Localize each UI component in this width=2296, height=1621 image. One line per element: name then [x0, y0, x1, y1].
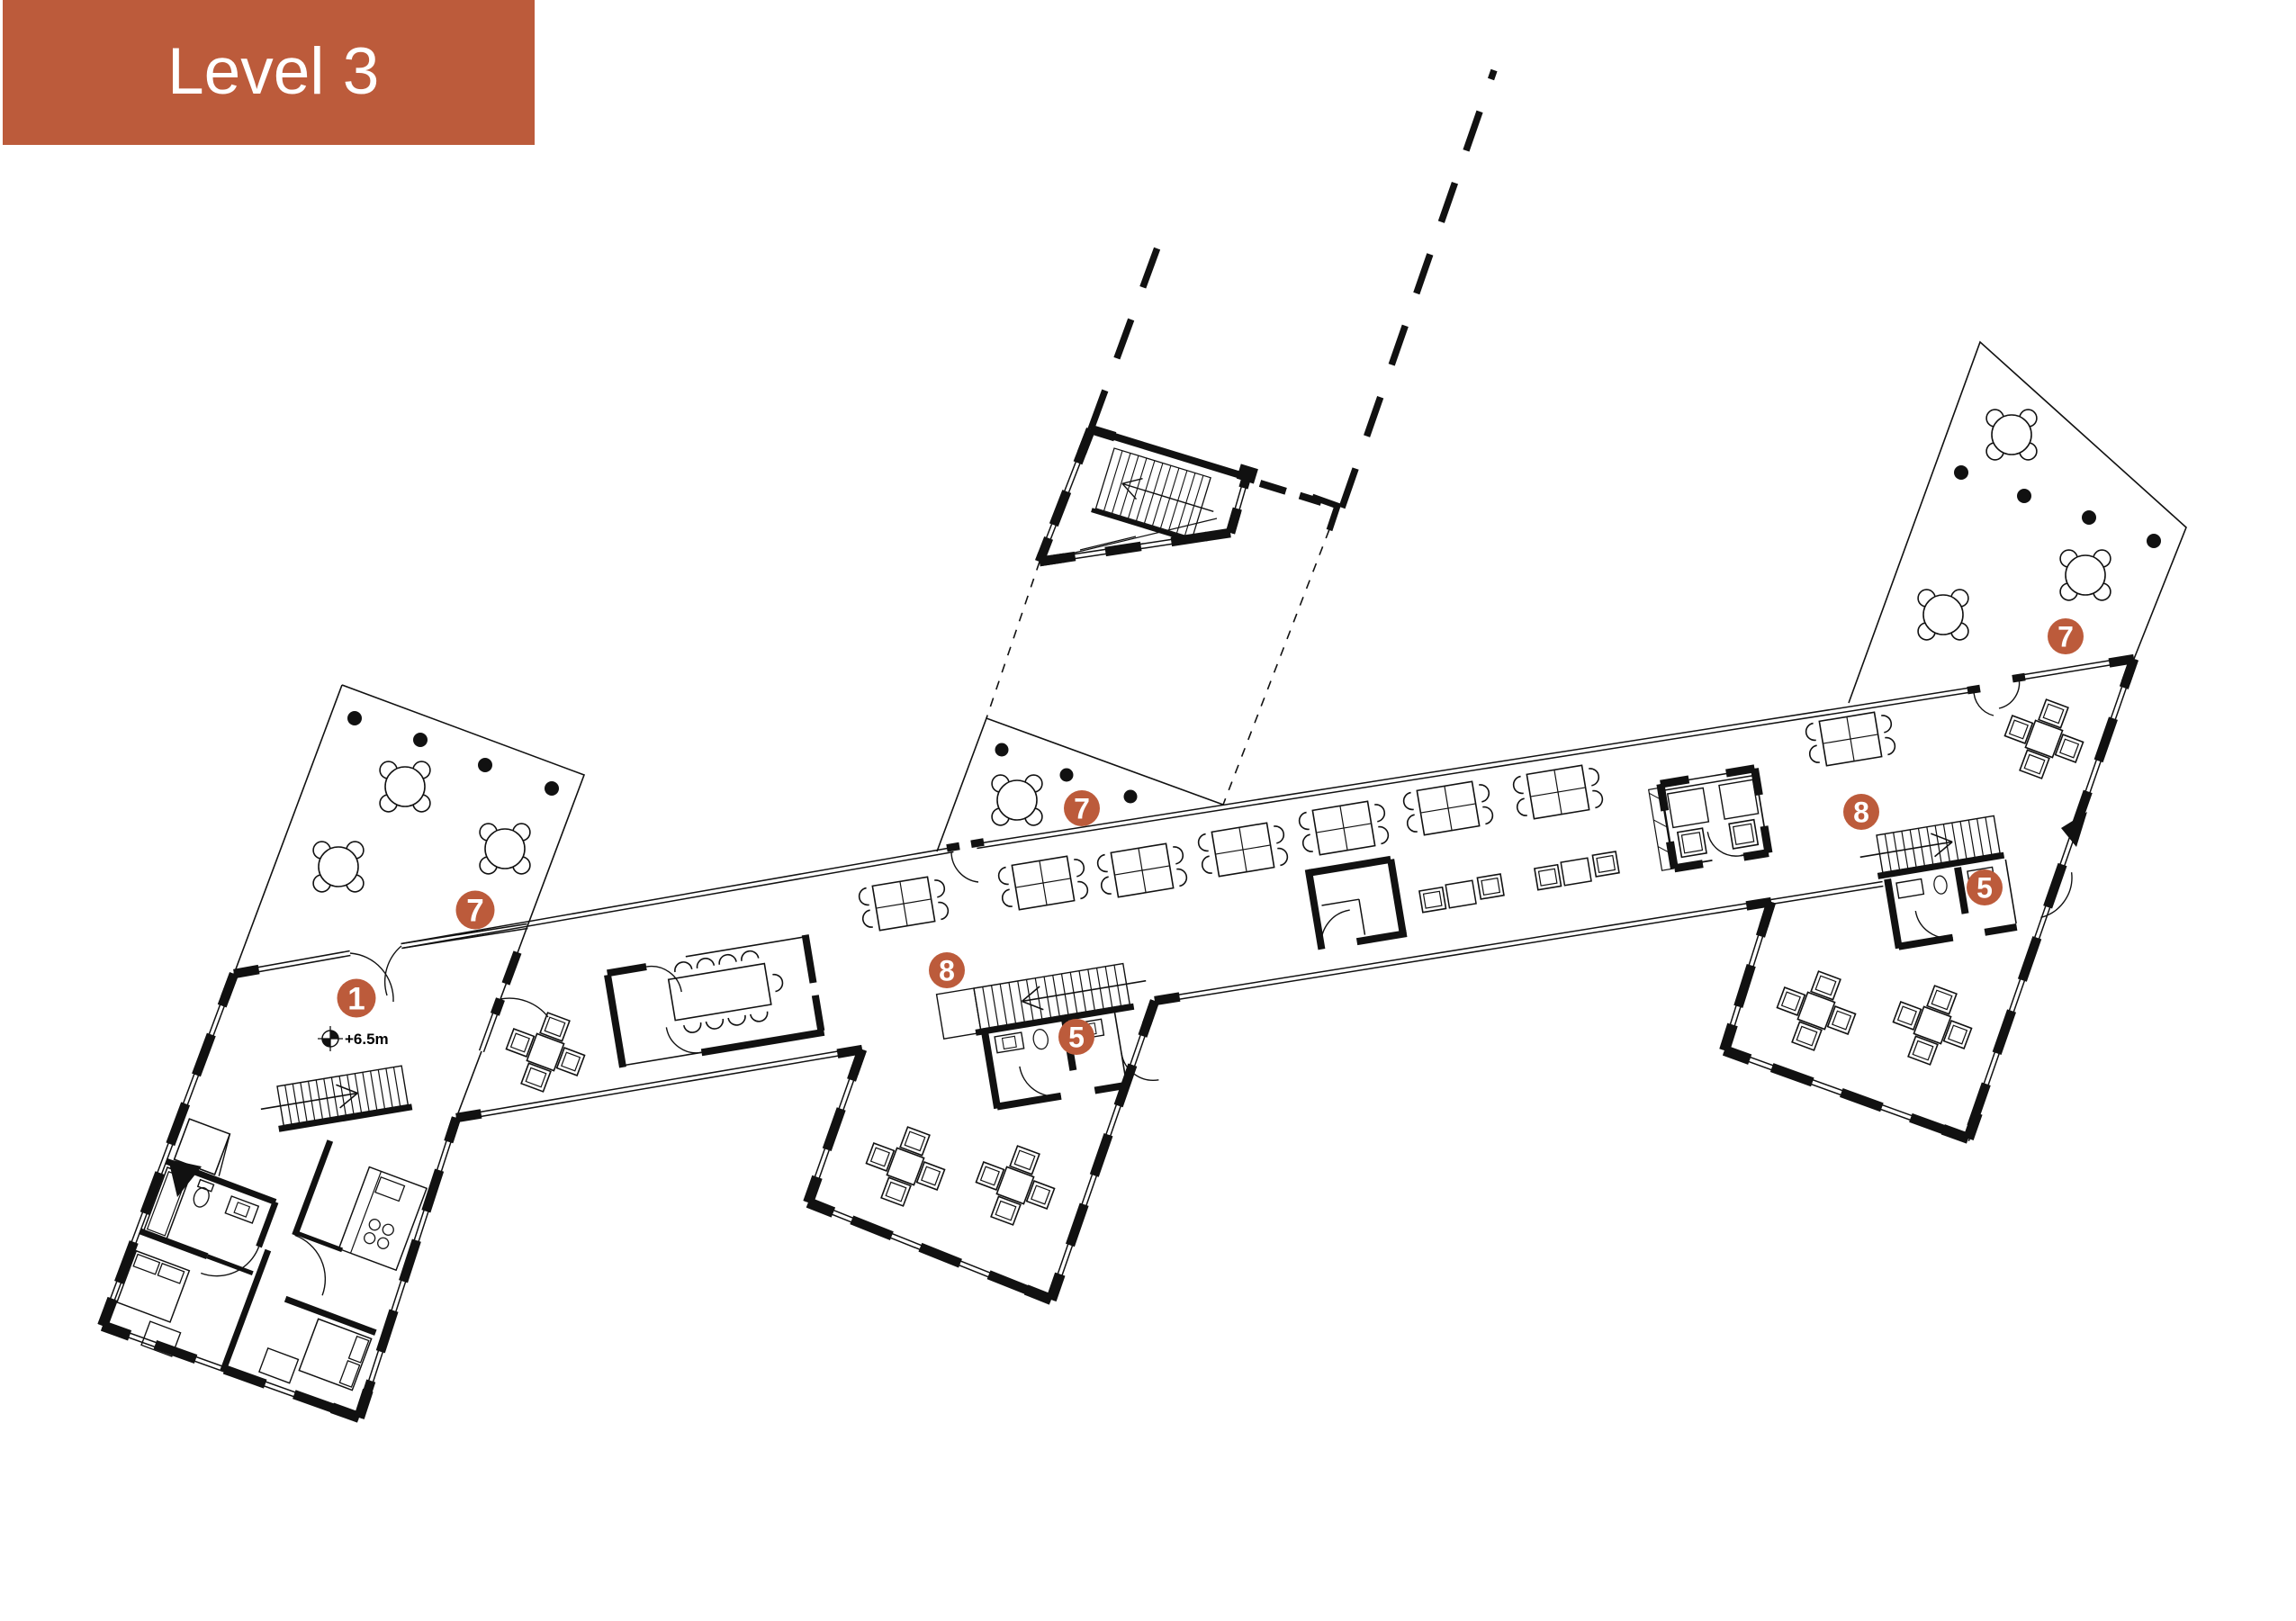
svg-text:+6.5m: +6.5m — [345, 1031, 389, 1048]
svg-text:7: 7 — [2057, 621, 2074, 653]
svg-text:7: 7 — [1074, 793, 1090, 825]
svg-text:5: 5 — [1068, 1022, 1085, 1054]
svg-text:5: 5 — [1976, 872, 1993, 905]
svg-text:1: 1 — [347, 982, 365, 1017]
svg-text:8: 8 — [939, 955, 955, 987]
svg-text:7: 7 — [466, 894, 483, 929]
svg-text:8: 8 — [1853, 797, 1869, 829]
svg-text:Level 3: Level 3 — [167, 35, 379, 108]
